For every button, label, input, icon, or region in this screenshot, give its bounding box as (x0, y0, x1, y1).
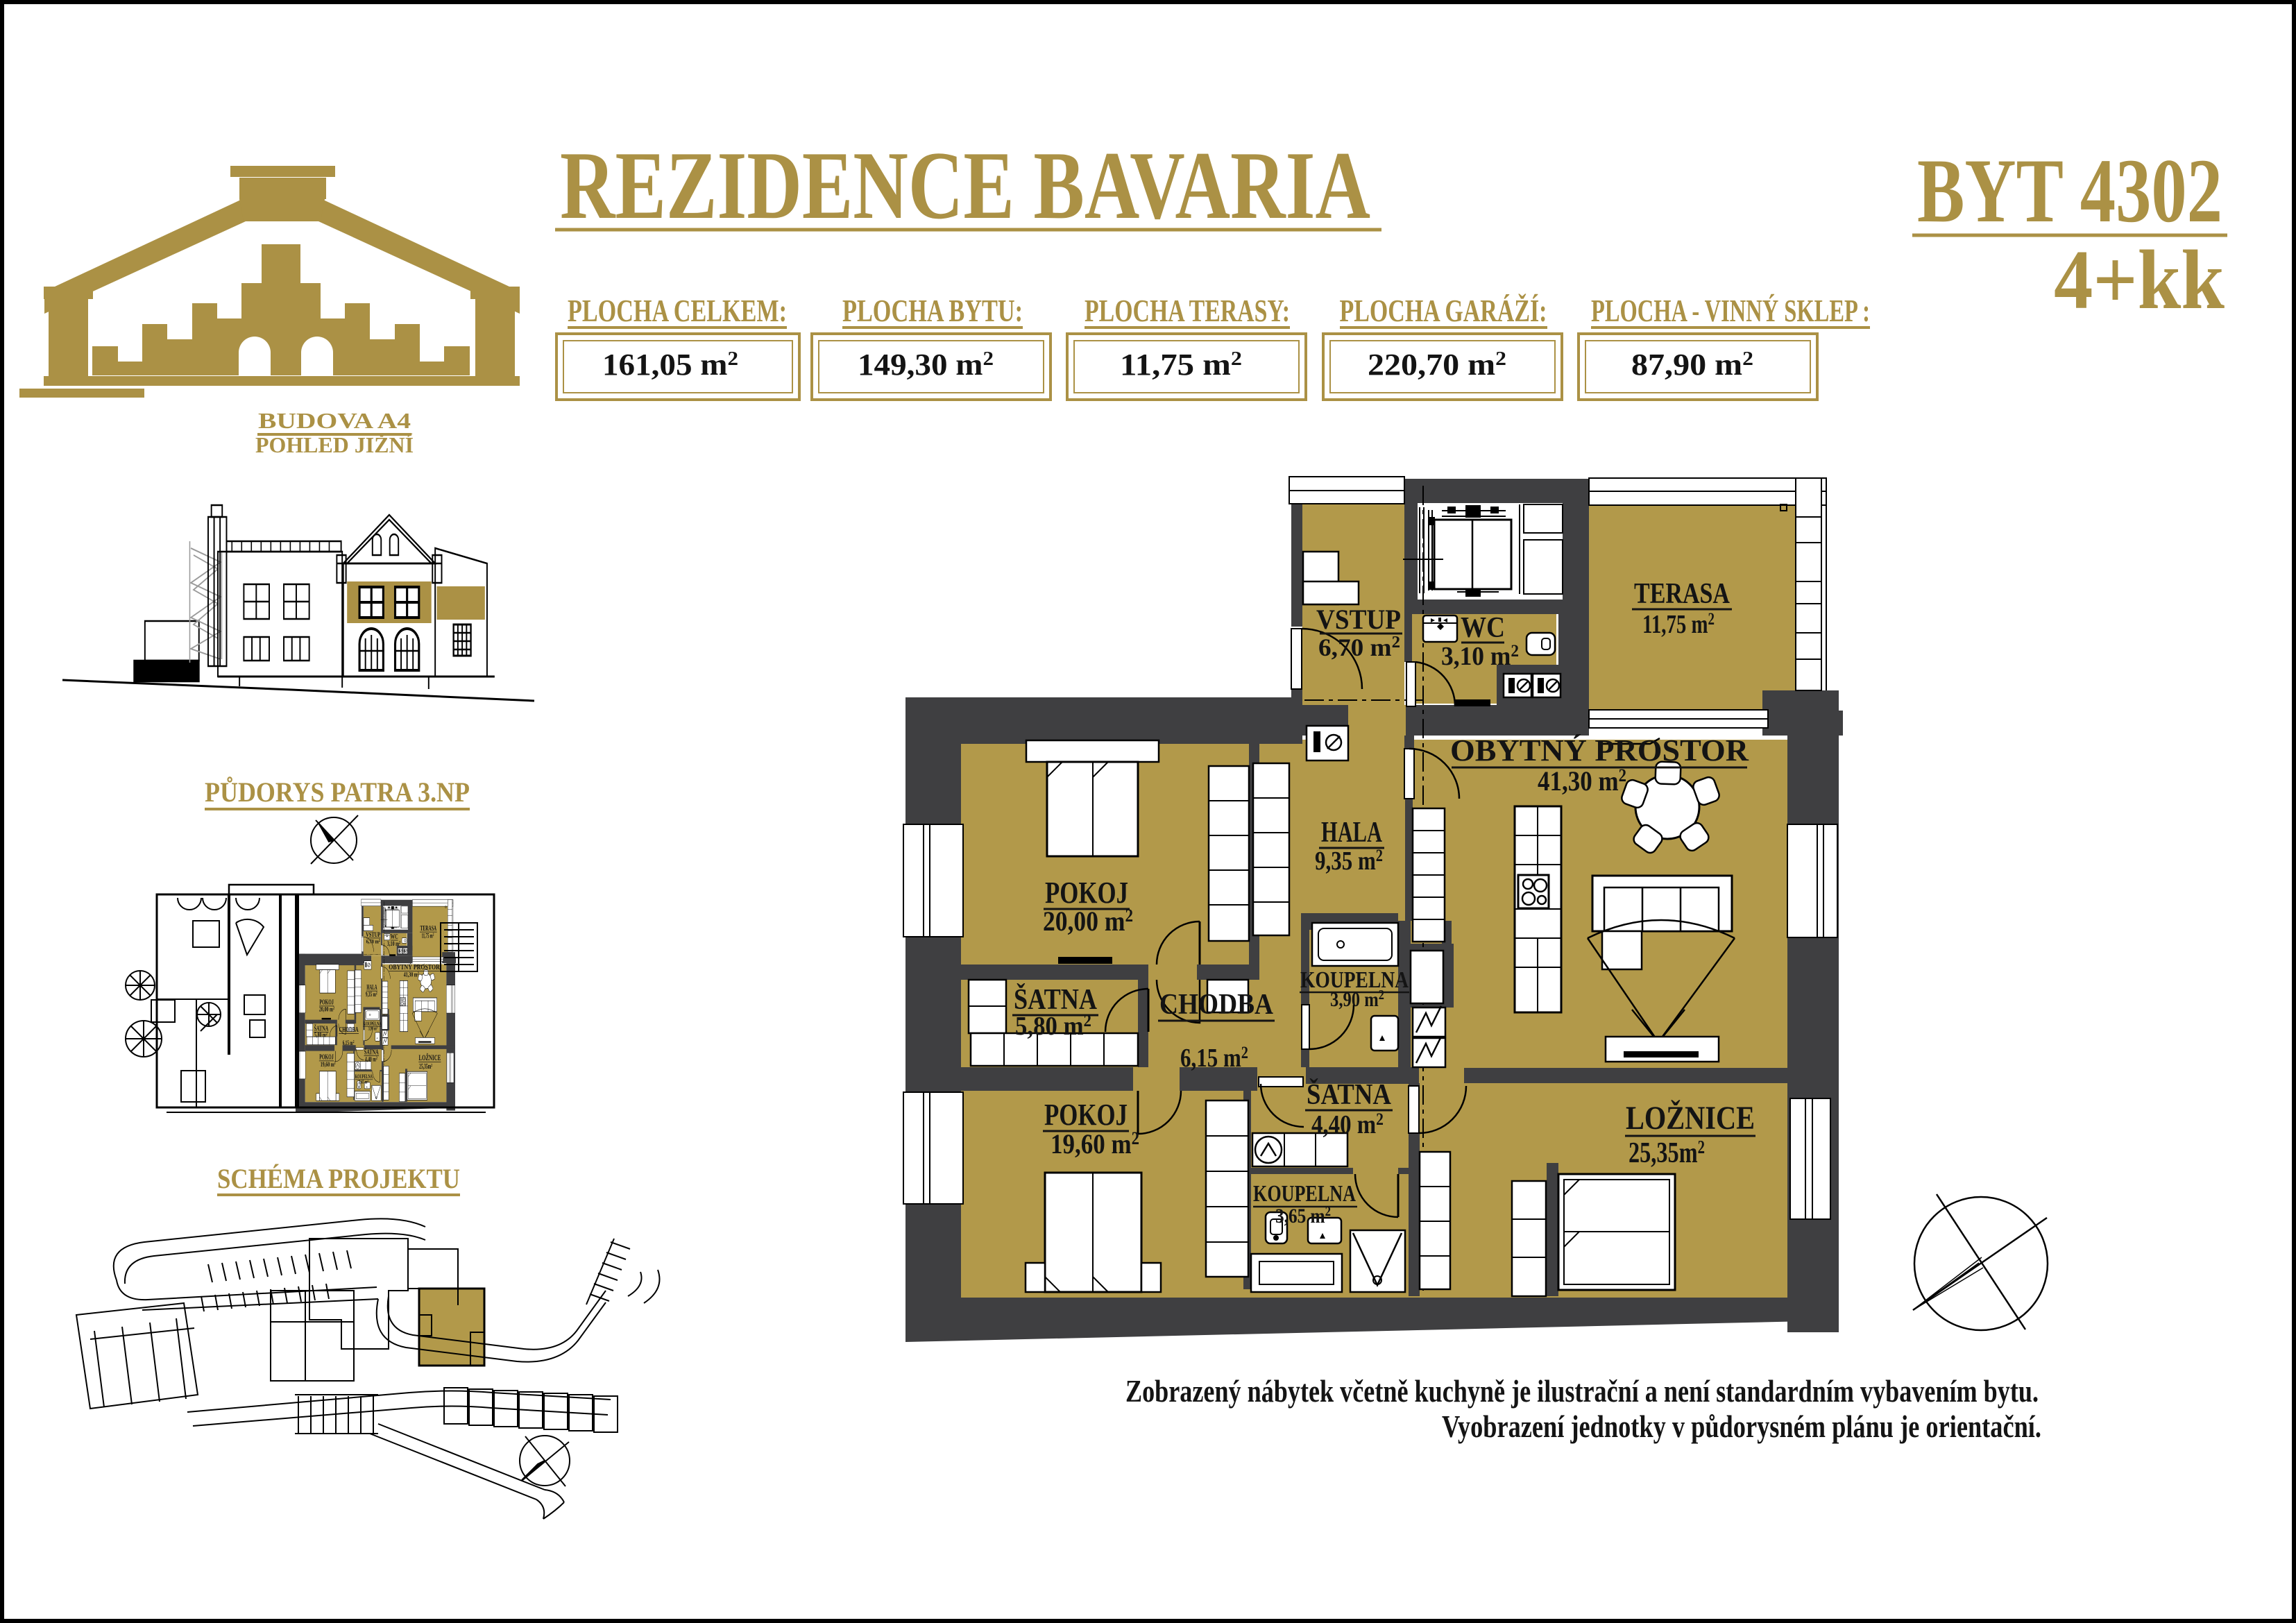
svg-text:3,10 m2: 3,10 m2 (1441, 642, 1519, 671)
svg-text:PLOCHA GARÁŽÍ:: PLOCHA GARÁŽÍ: (1340, 293, 1547, 328)
svg-text:41,30 m2: 41,30 m2 (1538, 765, 1626, 797)
svg-text:POHLED JIŽNÍ: POHLED JIŽNÍ (255, 432, 414, 457)
svg-text:PLOCHA CELKEM:: PLOCHA CELKEM: (568, 293, 787, 328)
svg-text:PLOCHA TERASY:: PLOCHA TERASY: (1085, 293, 1290, 328)
svg-text:PLOCHA - VINNÝ SKLEP :: PLOCHA - VINNÝ SKLEP : (1591, 293, 1870, 328)
svg-text:6,70 m2: 6,70 m2 (1318, 634, 1400, 661)
svg-text:POKOJ: POKOJ (1045, 876, 1128, 910)
svg-text:HALA: HALA (1321, 817, 1382, 849)
svg-text:11,75 m2: 11,75 m2 (1642, 610, 1715, 639)
svg-text:6,15 m2: 6,15 m2 (1180, 1044, 1248, 1073)
svg-text:VSTUP: VSTUP (1316, 604, 1401, 635)
svg-text:5,80 m2: 5,80 m2 (1015, 1012, 1091, 1041)
svg-text:ŠATNA: ŠATNA (1014, 983, 1098, 1016)
svg-text:WC: WC (1461, 612, 1505, 644)
svg-text:OBYTNÝ PROSTOR: OBYTNÝ PROSTOR (1450, 733, 1749, 767)
svg-text:TERASA: TERASA (1634, 578, 1730, 610)
svg-text:POKOJ: POKOJ (1044, 1098, 1128, 1132)
svg-text:3,65 m2: 3,65 m2 (1275, 1204, 1331, 1227)
svg-text:KOUPELNA: KOUPELNA (1253, 1181, 1356, 1207)
svg-text:161,05 m2: 161,05 m2 (602, 348, 738, 382)
svg-text:19,60 m2: 19,60 m2 (1051, 1128, 1139, 1159)
svg-text:PLOCHA BYTU:: PLOCHA BYTU: (842, 293, 1023, 328)
svg-text:11,75 m2: 11,75 m2 (1120, 348, 1242, 382)
svg-text:BYT 4302: BYT 4302 (1917, 139, 2222, 241)
svg-text:BUDOVA A4: BUDOVA A4 (258, 408, 411, 433)
svg-text:9,35 m2: 9,35 m2 (1315, 847, 1383, 876)
svg-text:PŮDORYS PATRA 3.NP: PŮDORYS PATRA 3.NP (205, 776, 470, 808)
svg-text:LOŽNICE: LOŽNICE (1626, 1099, 1755, 1137)
svg-text:20,00 m2: 20,00 m2 (1043, 906, 1133, 937)
svg-text:25,35m2: 25,35m2 (1629, 1137, 1705, 1169)
svg-text:3,90 m2: 3,90 m2 (1330, 987, 1384, 1011)
svg-text:87,90 m2: 87,90 m2 (1631, 348, 1753, 382)
svg-text:4,40 m2: 4,40 m2 (1311, 1110, 1384, 1139)
svg-text:ŠATNA: ŠATNA (1307, 1078, 1392, 1111)
svg-text:REZIDENCE BAVARIA: REZIDENCE BAVARIA (560, 132, 1370, 239)
svg-text:220,70 m2: 220,70 m2 (1368, 348, 1506, 382)
svg-text:Vyobrazení jednotky v půdorysn: Vyobrazení jednotky v půdorysném plánu j… (1442, 1409, 2041, 1444)
svg-text:Zobrazený nábytek včetně kuchy: Zobrazený nábytek včetně kuchyně je ilus… (1125, 1373, 2039, 1409)
svg-text:CHODBA: CHODBA (1159, 989, 1274, 1021)
svg-text:149,30 m2: 149,30 m2 (858, 348, 994, 382)
svg-text:4+kk: 4+kk (2054, 233, 2225, 327)
svg-text:SCHÉMA PROJEKTU: SCHÉMA PROJEKTU (217, 1163, 460, 1194)
